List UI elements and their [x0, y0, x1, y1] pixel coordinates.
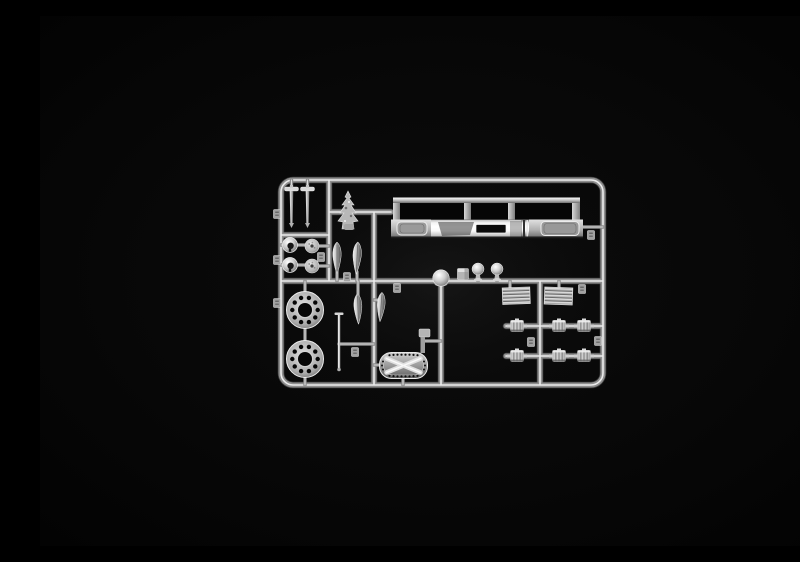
part-horn-disc	[305, 259, 319, 273]
part-number-tag	[579, 285, 586, 294]
part-number-tag	[595, 337, 602, 346]
part-wheel-hub-ring	[287, 341, 324, 378]
part-catwalk-plate	[380, 353, 428, 379]
part-cube-block	[458, 269, 469, 280]
part-number-tag	[318, 253, 325, 262]
part-tread-plate	[544, 287, 573, 305]
part-headlight-bucket	[283, 238, 298, 253]
part-number-tag	[528, 338, 535, 347]
part-number-tag	[274, 299, 281, 308]
part-number-tag	[394, 284, 401, 293]
part-front-bumper	[391, 198, 583, 239]
part-number-tag	[344, 273, 351, 282]
part-number-tag	[274, 256, 281, 265]
part-dome-cap	[433, 270, 449, 287]
part-number-tag	[274, 210, 281, 219]
sprue-photo	[40, 16, 800, 546]
part-tread-plate	[502, 287, 530, 304]
part-headlight-bucket	[283, 258, 298, 273]
part-number-tag	[352, 348, 359, 357]
part-horn-disc	[305, 239, 319, 253]
part-number-tag	[588, 231, 595, 240]
part-wheel-hub-ring	[287, 292, 324, 329]
sprue-photo-svg	[40, 16, 800, 546]
